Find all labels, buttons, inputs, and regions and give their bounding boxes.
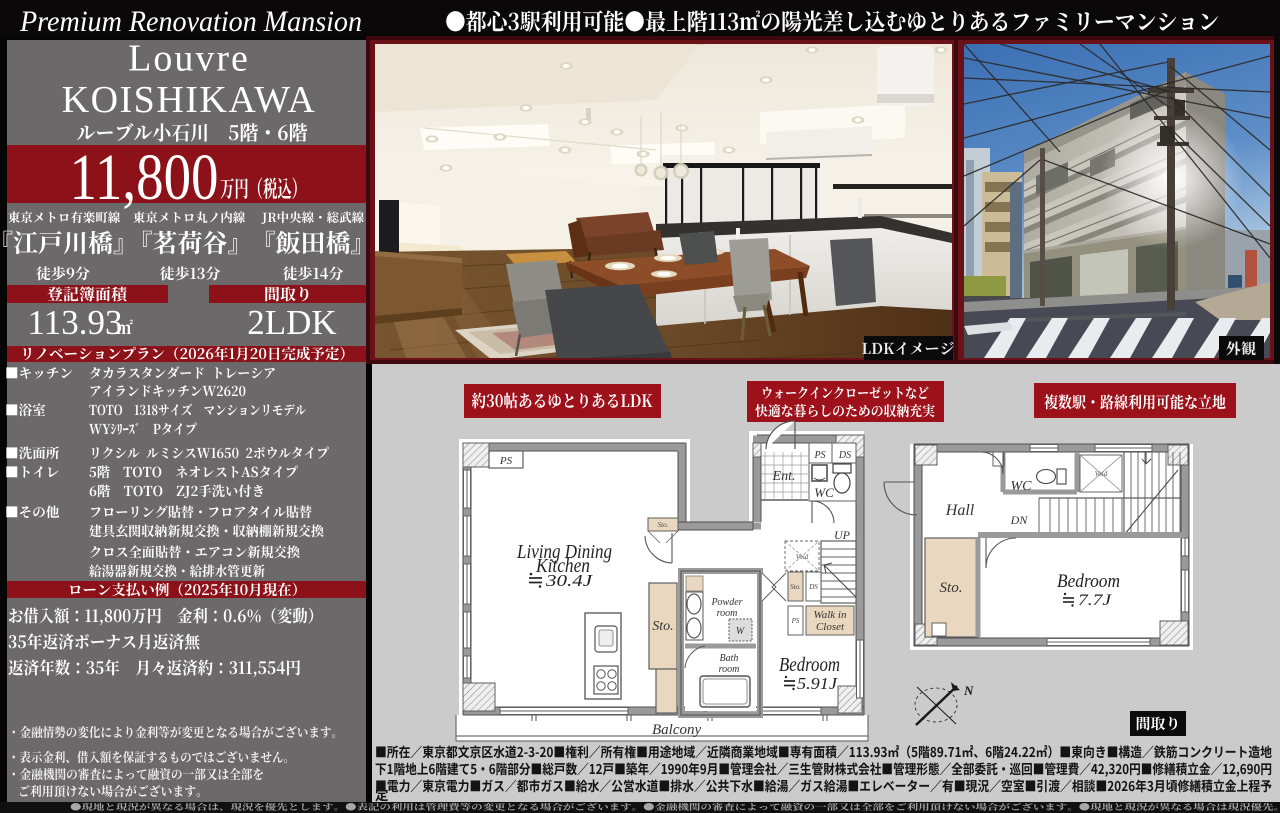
svg-text:Premium Renovation Mansion: Premium Renovation Mansion bbox=[19, 5, 362, 38]
svg-text:Void: Void bbox=[796, 553, 809, 561]
svg-text:room: room bbox=[717, 608, 738, 619]
svg-text:Balcony: Balcony bbox=[652, 722, 701, 738]
svg-text:DS: DS bbox=[808, 583, 818, 591]
svg-text:KOISHIKAWA: KOISHIKAWA bbox=[62, 79, 317, 121]
svg-text:PS: PS bbox=[791, 617, 800, 625]
svg-text:WC: WC bbox=[1011, 479, 1033, 494]
svg-text:Closet: Closet bbox=[816, 621, 845, 633]
svg-text:Bath: Bath bbox=[720, 653, 739, 664]
svg-text:DN: DN bbox=[1010, 513, 1029, 527]
svg-text:Louvre: Louvre bbox=[128, 38, 250, 80]
svg-text:room: room bbox=[719, 664, 740, 675]
svg-text:N: N bbox=[963, 683, 974, 698]
svg-text:UP: UP bbox=[834, 528, 851, 542]
svg-text:5.91J: 5.91J bbox=[797, 674, 839, 693]
svg-text:Sto.: Sto. bbox=[658, 521, 669, 529]
svg-text:11,800: 11,800 bbox=[70, 141, 219, 214]
svg-text:Walk in: Walk in bbox=[814, 609, 847, 621]
svg-text:113.93: 113.93 bbox=[28, 303, 123, 342]
svg-text:Void: Void bbox=[1095, 470, 1108, 478]
svg-text:PS: PS bbox=[813, 450, 825, 461]
svg-text:Sto.: Sto. bbox=[940, 580, 963, 596]
svg-text:Bedroom: Bedroom bbox=[1057, 571, 1120, 592]
svg-text:DS: DS bbox=[838, 450, 851, 461]
svg-text:30.4J: 30.4J bbox=[545, 571, 594, 590]
svg-text:Ent.: Ent. bbox=[772, 469, 796, 484]
svg-text:WC: WC bbox=[814, 485, 834, 500]
svg-text:Hall: Hall bbox=[945, 502, 975, 519]
svg-text:Sto.: Sto. bbox=[790, 583, 801, 591]
svg-text:Sto.: Sto. bbox=[652, 619, 673, 634]
svg-text:Powder: Powder bbox=[710, 597, 742, 608]
svg-text:PS: PS bbox=[499, 455, 513, 467]
svg-text:2LDK: 2LDK bbox=[247, 303, 336, 342]
svg-text:Bedroom: Bedroom bbox=[779, 654, 840, 676]
svg-text:7.7J: 7.7J bbox=[1078, 592, 1112, 609]
